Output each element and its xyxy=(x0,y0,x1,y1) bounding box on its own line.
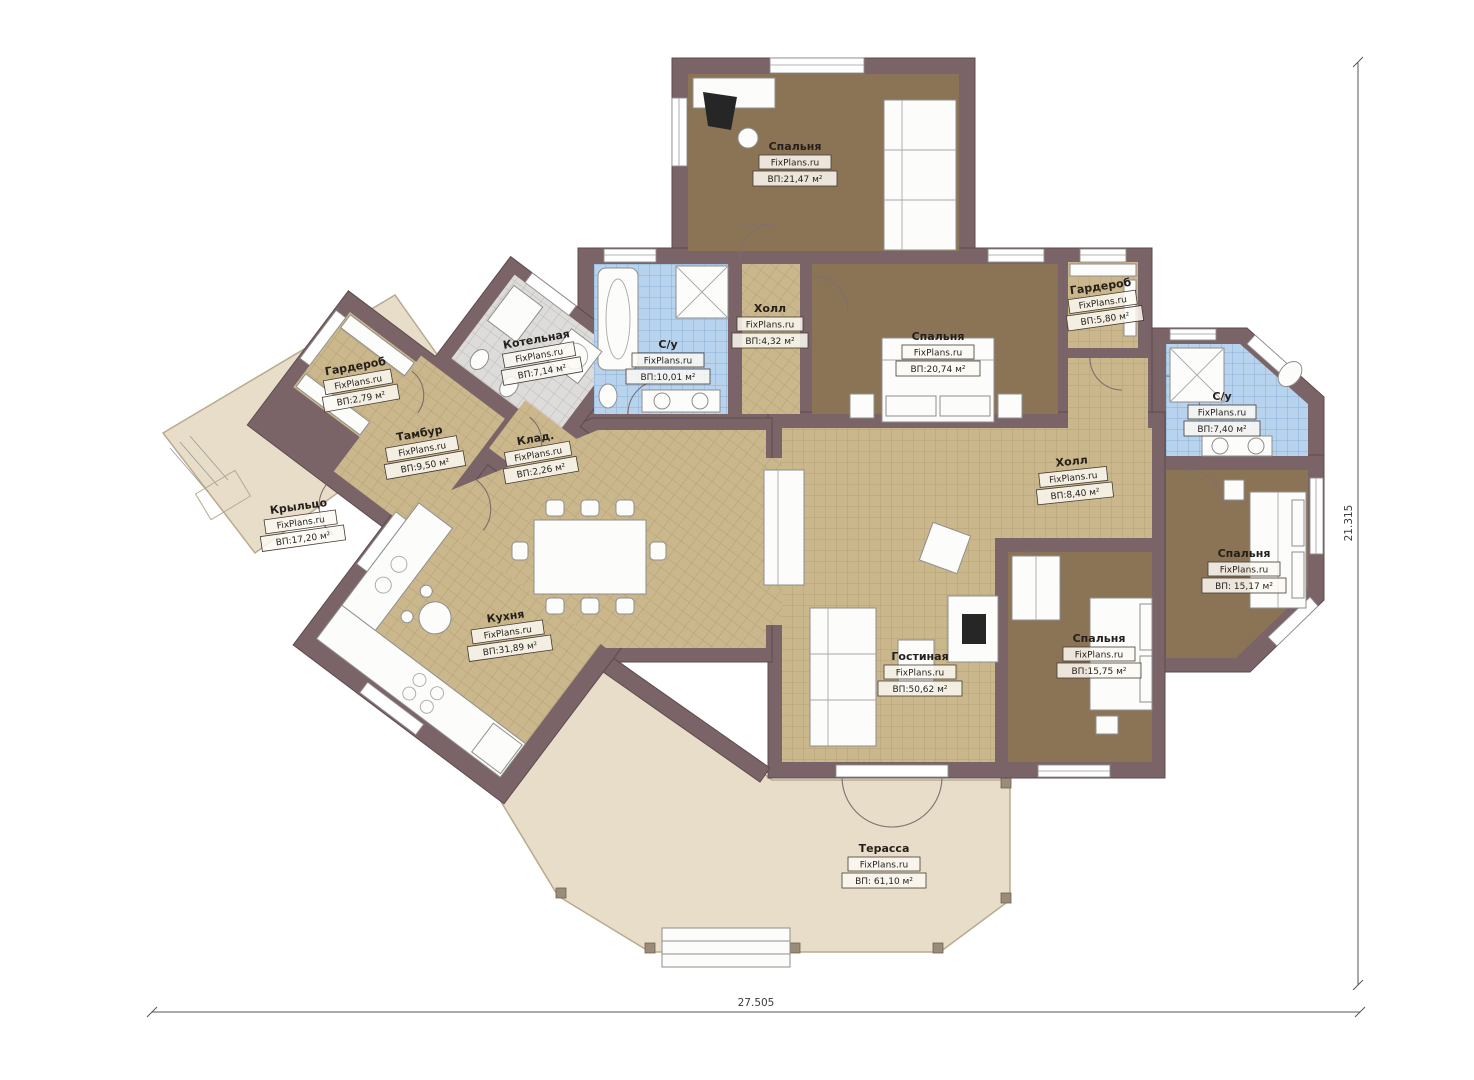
chair xyxy=(512,542,528,560)
room-name: С/у xyxy=(658,338,677,351)
area-label: ВП:10,01 м² xyxy=(641,373,696,383)
pillow xyxy=(940,396,990,416)
chair xyxy=(546,598,564,614)
corridor-floor xyxy=(1068,358,1148,430)
brand-label: FixPlans.ru xyxy=(1198,409,1246,419)
dimension-right: 21.315 xyxy=(1343,57,1363,990)
sink xyxy=(1212,438,1228,454)
window xyxy=(672,98,687,166)
sink xyxy=(1248,438,1264,454)
dimension-right-label: 21.315 xyxy=(1343,505,1355,542)
area-label: ВП: 15,17 м² xyxy=(1215,582,1273,592)
area-label: ВП:20,74 м² xyxy=(911,365,966,375)
window xyxy=(604,249,656,262)
hall-sofa xyxy=(764,470,804,585)
dimension-bottom: 27.505 xyxy=(147,997,1365,1017)
window xyxy=(988,249,1044,262)
window xyxy=(1080,249,1126,262)
window xyxy=(1310,478,1323,554)
chair xyxy=(650,542,666,560)
brand-label: FixPlans.ru xyxy=(860,861,908,871)
sink xyxy=(692,393,708,409)
brand-label: FixPlans.ru xyxy=(746,321,794,331)
area-label: ВП: 61,10 м² xyxy=(855,877,913,887)
chair xyxy=(581,598,599,614)
room-name: Спальня xyxy=(912,330,965,343)
floor-plan-drawing: Спальня FixPlans.ru ВП:21,47 м² С/у FixP… xyxy=(0,0,1474,1080)
window xyxy=(770,58,864,73)
brand-label: FixPlans.ru xyxy=(1075,651,1123,661)
toilet xyxy=(599,384,617,408)
pillow xyxy=(1292,500,1304,546)
brand-label: FixPlans.ru xyxy=(914,349,962,359)
chair xyxy=(546,500,564,516)
room-name: Терасса xyxy=(859,842,910,855)
sofa xyxy=(884,100,956,250)
piano xyxy=(703,92,737,130)
area-label: ВП:50,62 м² xyxy=(893,685,948,695)
pillow xyxy=(1140,656,1152,702)
room-name: Спальня xyxy=(1073,632,1126,645)
nightstand xyxy=(1224,480,1244,500)
area-label: ВП:7,40 м² xyxy=(1197,425,1247,435)
brand-label: FixPlans.ru xyxy=(1220,566,1268,576)
terrace-stairs xyxy=(662,928,790,967)
floor-plan-page: Спальня FixPlans.ru ВП:21,47 м² С/у FixP… xyxy=(0,0,1474,1080)
sofa xyxy=(810,608,876,746)
dining-table xyxy=(534,520,646,594)
nightstand xyxy=(998,394,1022,418)
room-name: Гостиная xyxy=(891,650,948,663)
room-name: Спальня xyxy=(769,140,822,153)
pillow xyxy=(886,396,936,416)
nightstand xyxy=(850,394,874,418)
area-label: ВП:21,47 м² xyxy=(768,175,823,185)
chair xyxy=(738,128,758,148)
room-name: Спальня xyxy=(1218,547,1271,560)
brand-label: FixPlans.ru xyxy=(644,357,692,367)
window xyxy=(1170,329,1216,340)
nightstand xyxy=(1096,716,1118,734)
brand-label: FixPlans.ru xyxy=(896,669,944,679)
chair xyxy=(581,500,599,516)
chair xyxy=(616,500,634,516)
brand-label: FixPlans.ru xyxy=(771,159,819,169)
area-label: ВП:4,32 м² xyxy=(745,337,795,347)
window xyxy=(1038,765,1110,777)
room-name: С/у xyxy=(1212,390,1231,403)
room-name: Холл xyxy=(754,302,786,315)
chair xyxy=(616,598,634,614)
dimension-bottom-label: 27.505 xyxy=(738,997,775,1009)
area-label: ВП:15,75 м² xyxy=(1072,667,1127,677)
sink xyxy=(654,393,670,409)
pillow xyxy=(1140,604,1152,650)
pillow xyxy=(1292,552,1304,598)
